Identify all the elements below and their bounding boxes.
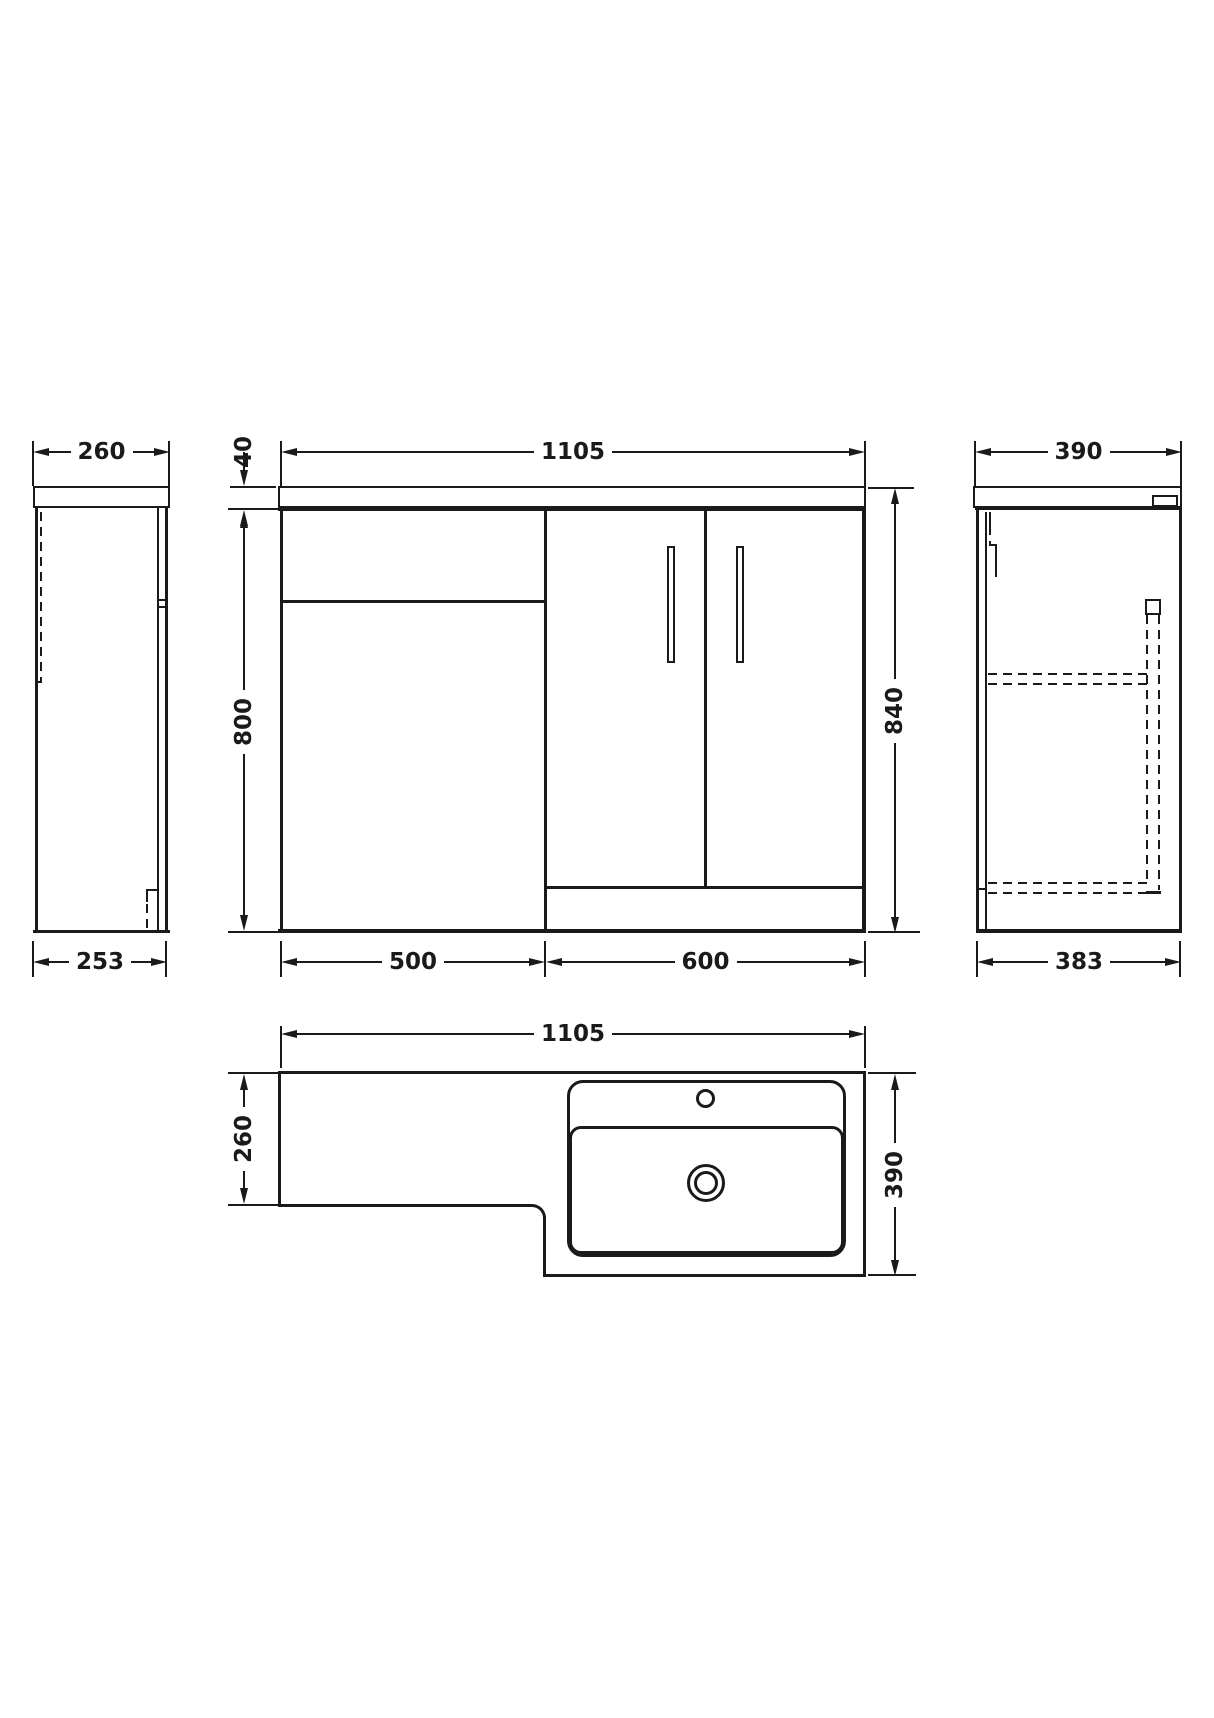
dim-label-left-width: 260 <box>71 439 133 465</box>
dim-label-right-depth: 390 <box>1048 439 1110 465</box>
dim-label-plan-width: 1105 <box>534 1021 612 1047</box>
front-view-drawer-line <box>283 600 544 603</box>
arrow-left-icon <box>546 958 562 966</box>
dim-label-plan-wc-depth: 260 <box>231 1115 257 1163</box>
arrow-left-icon <box>281 1030 297 1038</box>
front-view-unit-boundary <box>544 511 547 929</box>
arrow-left-icon <box>281 958 297 966</box>
dim-front-width: 1105 <box>281 439 865 465</box>
arrow-left-icon <box>975 448 991 456</box>
arrow-left-icon <box>281 448 297 456</box>
ext-tick <box>868 931 920 933</box>
ext-tick <box>868 487 914 489</box>
ext-line <box>864 941 866 977</box>
ext-line <box>32 941 34 977</box>
right-view-door-front-edge <box>976 510 979 931</box>
ext-tick <box>868 1072 916 1074</box>
right-view-base-hidden-top <box>988 882 1148 884</box>
ext-line <box>165 941 167 977</box>
plan-view-waste-inner <box>694 1171 718 1195</box>
plan-view-bottom-left-edge <box>278 1204 533 1207</box>
dim-left-view-base: 253 <box>33 949 167 975</box>
right-view-back-panel-hidden-right <box>1158 615 1160 890</box>
left-view-bottom-edge <box>33 930 170 933</box>
ext-tick <box>868 1274 916 1276</box>
dim-label-plan-basin-depth: 390 <box>882 1151 908 1199</box>
ext-tick <box>230 486 276 488</box>
right-view-shelf-hidden-bottom <box>988 683 1148 685</box>
ext-line <box>864 441 866 486</box>
arrow-right-icon <box>849 1030 865 1038</box>
arrow-down-icon <box>240 470 248 486</box>
arrow-right-icon <box>849 448 865 456</box>
dim-wc-unit-width: 500 <box>281 949 545 975</box>
ext-line <box>864 1026 866 1068</box>
ext-line <box>1179 941 1181 977</box>
left-view-drawer-gap-bottom <box>157 606 168 608</box>
arrow-left-icon <box>33 958 49 966</box>
arrow-left-icon <box>977 958 993 966</box>
ext-tick <box>228 1072 278 1074</box>
right-view-countertop-underline <box>975 506 1182 510</box>
dim-label-total-height: 840 <box>882 686 908 734</box>
dim-right-view-depth: 390 <box>975 439 1182 465</box>
ext-tick <box>228 508 278 510</box>
arrow-up-icon <box>891 488 899 504</box>
arrow-down-icon <box>240 1188 248 1204</box>
right-view-back-panel-cap <box>1145 599 1161 615</box>
right-view-bottom-edge <box>976 929 1182 933</box>
left-view-door-inner-edge <box>157 508 159 930</box>
dim-plan-width: 1105 <box>281 1021 865 1047</box>
dim-label-right-base: 383 <box>1048 949 1110 975</box>
front-view-left-edge <box>280 511 283 931</box>
front-view-door-divider <box>704 511 707 888</box>
arrow-left-icon <box>33 448 49 456</box>
plan-view-right-edge <box>863 1071 866 1277</box>
ext-line <box>280 941 282 977</box>
dim-plan-wc-depth: 260 <box>230 1074 258 1204</box>
left-view-hidden-cistern-line <box>40 512 42 682</box>
ext-line <box>974 441 976 486</box>
arrow-down-icon <box>240 915 248 931</box>
right-view-hinge-step-1 <box>989 512 991 526</box>
right-view-hinge-hidden-2 <box>995 568 997 582</box>
front-view-right-door-handle <box>736 546 744 663</box>
left-view-door-front-edge <box>165 508 168 930</box>
arrow-up-icon <box>240 512 248 528</box>
plan-view-step-edge <box>543 1216 546 1277</box>
right-view-hinge-hidden-1 <box>989 526 991 546</box>
left-view-left-edge <box>35 508 38 933</box>
dim-label-left-base: 253 <box>69 949 131 975</box>
ext-line <box>544 941 546 977</box>
front-view-left-door-handle <box>667 546 675 663</box>
right-view-door-bottom-tick <box>976 888 987 890</box>
right-view-shelf-hidden-top <box>988 673 1148 675</box>
plan-view-bottom-right-edge <box>543 1274 866 1277</box>
plan-view-tap-hole <box>696 1089 715 1108</box>
ext-line <box>168 441 170 486</box>
left-view-hidden-cistern-tick <box>35 681 42 683</box>
right-view-base-hidden-bottom <box>988 892 1148 894</box>
front-view-bottom-edge <box>278 929 866 933</box>
arrow-up-icon <box>240 1074 248 1090</box>
front-view-countertop <box>278 486 866 508</box>
right-view-door-inner-edge <box>985 512 987 931</box>
ext-line <box>1180 441 1182 486</box>
dim-label-wc-unit: 500 <box>382 949 444 975</box>
right-view-basin-edge-clip <box>1152 495 1178 507</box>
dim-plan-basin-depth: 390 <box>881 1074 909 1276</box>
front-view-plinth-line <box>547 886 862 889</box>
left-view-plinth-hidden-line <box>146 904 148 930</box>
front-view-right-edge <box>862 511 866 931</box>
dim-right-view-base: 383 <box>977 949 1181 975</box>
right-view-countertop <box>973 486 1182 508</box>
left-view-plinth-notch-side <box>146 889 148 902</box>
technical-drawing-canvas: 260 1105 390 40 800 840 253 <box>0 0 1214 1718</box>
dim-label-cabinet-height: 800 <box>231 697 257 745</box>
right-view-back-edge <box>1179 510 1182 931</box>
left-view-drawer-gap-top <box>157 599 168 601</box>
right-view-back-panel-hidden-left <box>1146 615 1148 880</box>
right-view-back-panel-foot <box>1146 891 1161 894</box>
dim-total-height: 840 <box>881 488 909 933</box>
ext-tick <box>228 931 278 933</box>
right-view-hinge-step-3 <box>995 544 997 568</box>
dim-basin-unit-width: 600 <box>546 949 865 975</box>
dim-cabinet-height: 800 <box>230 512 258 931</box>
dim-40-tail-top <box>243 452 245 470</box>
dim-label-front-width: 1105 <box>534 439 612 465</box>
arrow-up-icon <box>891 1074 899 1090</box>
ext-line <box>280 1026 282 1068</box>
front-view-countertop-underline <box>278 506 866 511</box>
ext-tick <box>228 1204 278 1206</box>
ext-line <box>976 941 978 977</box>
ext-line <box>32 441 34 486</box>
arrow-right-icon <box>529 958 545 966</box>
dim-left-view-width: 260 <box>33 439 170 465</box>
left-view-countertop <box>33 486 170 508</box>
dim-label-basin-unit: 600 <box>675 949 737 975</box>
ext-line <box>280 441 282 486</box>
plan-view-left-edge <box>278 1071 281 1207</box>
plan-view-top-edge <box>278 1071 866 1074</box>
arrow-right-icon <box>849 958 865 966</box>
